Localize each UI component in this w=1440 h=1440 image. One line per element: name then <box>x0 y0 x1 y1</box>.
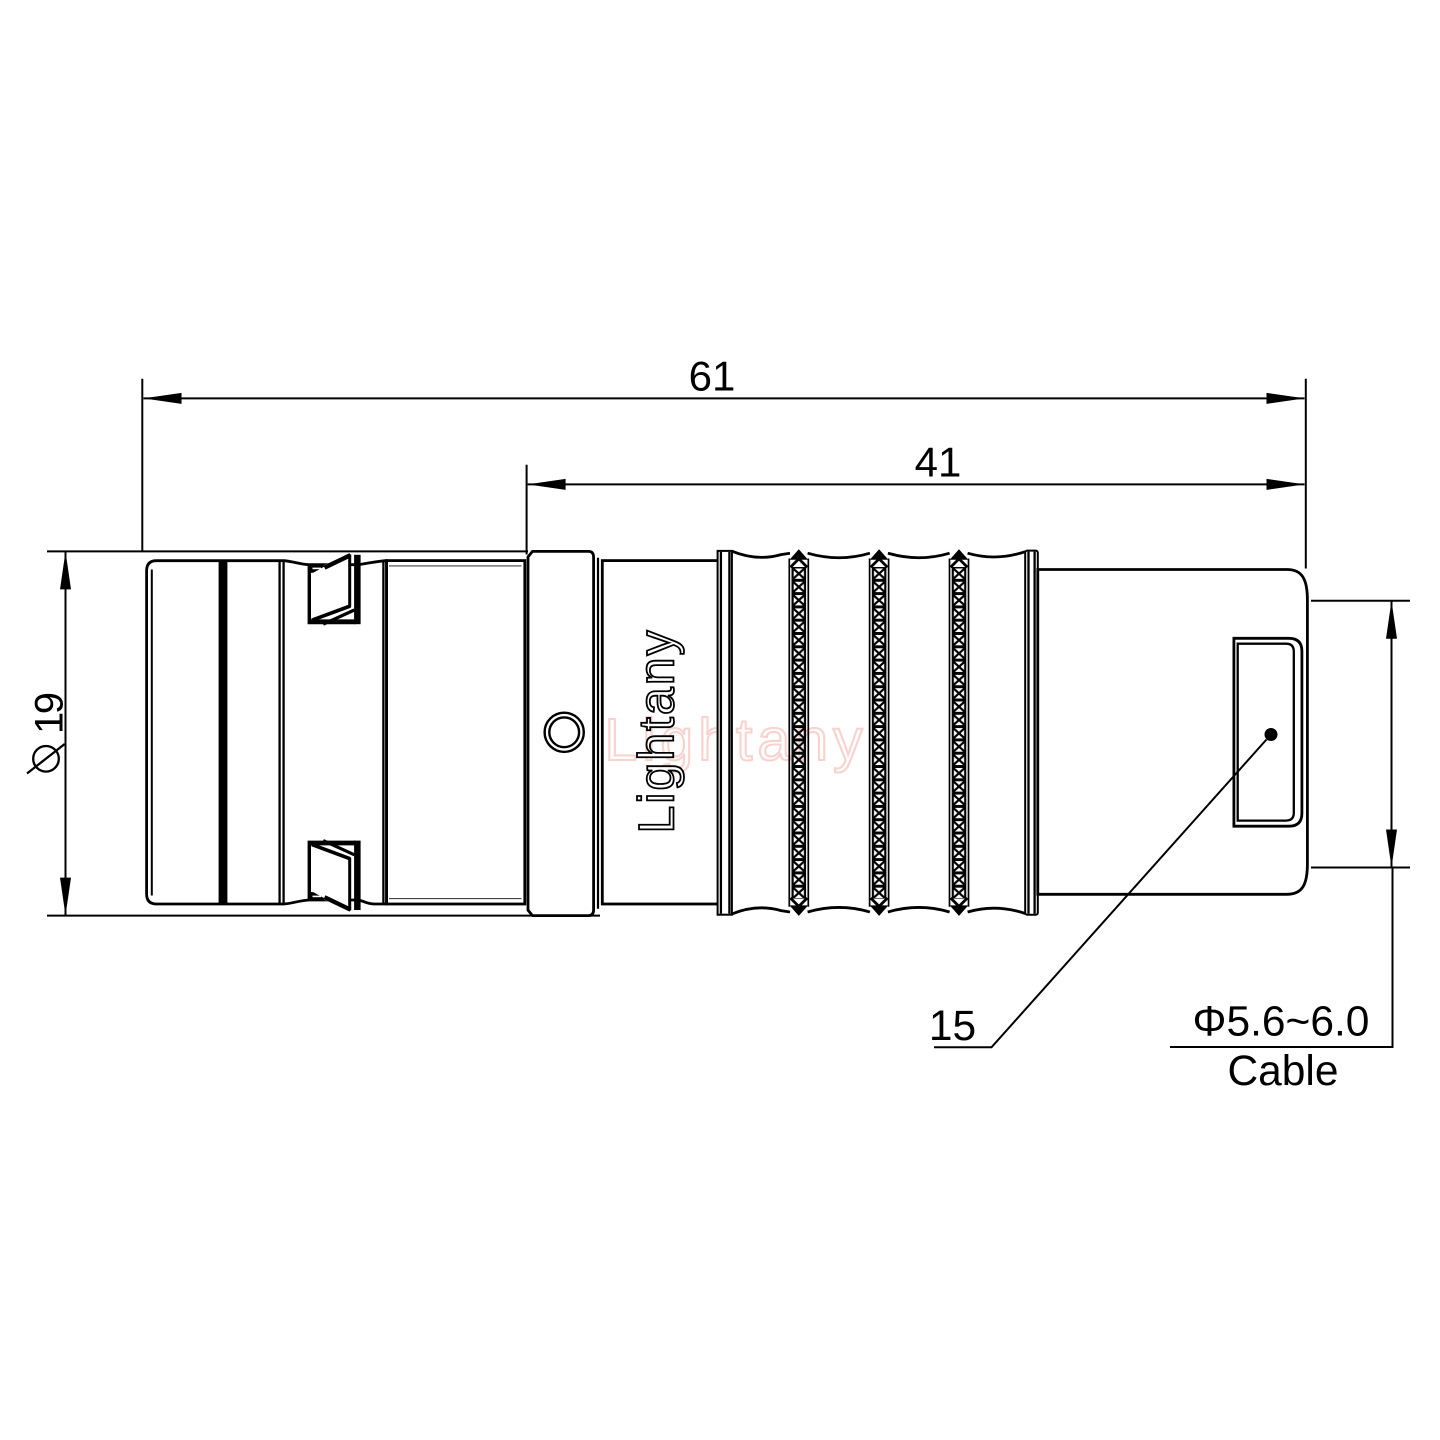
svg-text:15: 15 <box>929 1003 976 1050</box>
svg-text:41: 41 <box>915 439 962 486</box>
svg-text:19: 19 <box>28 693 72 734</box>
svg-text:61: 61 <box>689 353 736 400</box>
svg-text:Cable: Cable <box>1227 1048 1338 1095</box>
svg-text:Lightany: Lightany <box>629 628 685 833</box>
svg-text:Φ5.6~6.0: Φ5.6~6.0 <box>1193 999 1370 1046</box>
